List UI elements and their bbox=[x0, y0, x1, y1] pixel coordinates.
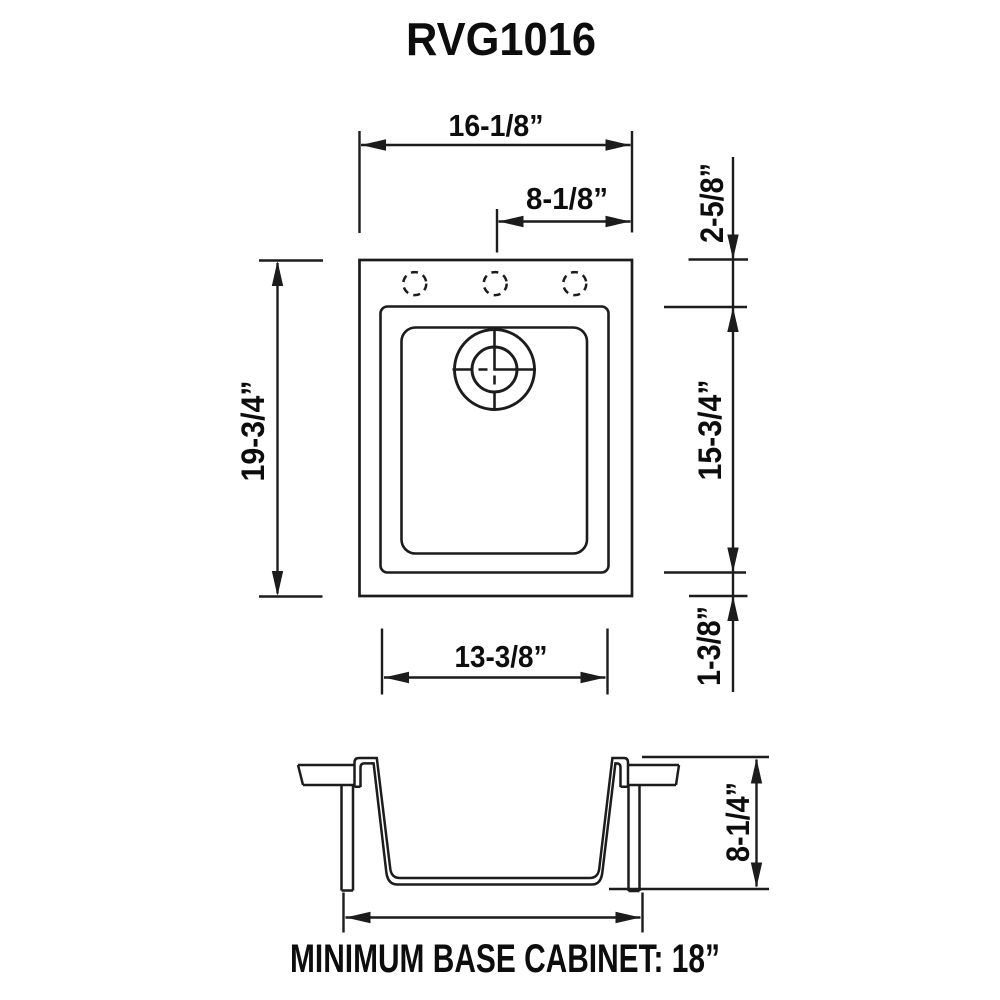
svg-text:MINIMUM BASE CABINET: 18”: MINIMUM BASE CABINET: 18” bbox=[290, 937, 720, 981]
svg-text:15-3/4”: 15-3/4” bbox=[692, 380, 728, 481]
svg-text:2-5/8”: 2-5/8” bbox=[694, 163, 730, 243]
svg-text:16-1/8”: 16-1/8” bbox=[449, 108, 544, 143]
svg-text:RVG1016: RVG1016 bbox=[406, 13, 596, 65]
svg-text:19-3/4”: 19-3/4” bbox=[235, 381, 271, 482]
svg-text:1-3/8”: 1-3/8” bbox=[691, 606, 727, 686]
svg-text:8-1/8”: 8-1/8” bbox=[526, 181, 608, 216]
svg-text:8-1/4”: 8-1/4” bbox=[720, 782, 756, 862]
svg-text:13-3/8”: 13-3/8” bbox=[455, 639, 548, 674]
